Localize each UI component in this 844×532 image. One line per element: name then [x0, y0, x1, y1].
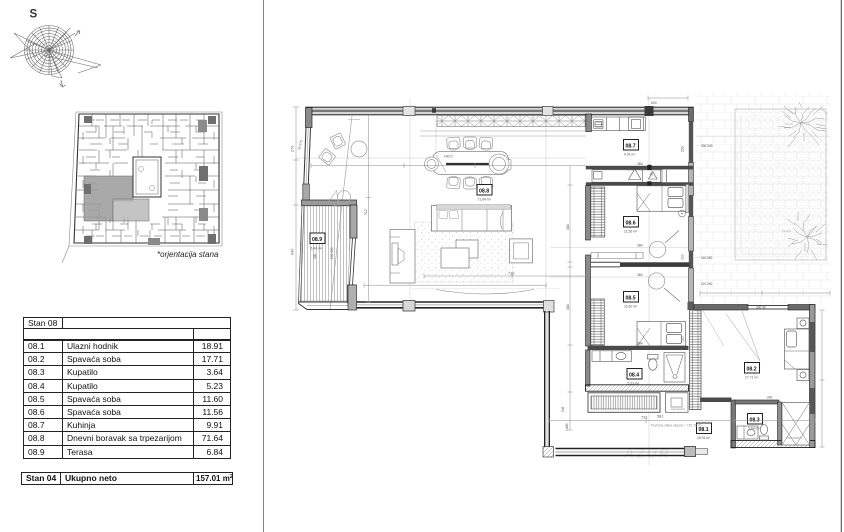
svg-text:600: 600: [651, 101, 657, 105]
svg-text:384: 384: [566, 224, 570, 230]
svg-text:5.23 m²: 5.23 m²: [628, 382, 640, 386]
svg-text:08.6: 08.6: [626, 220, 636, 226]
svg-text:180: 180: [313, 253, 317, 259]
svg-text:Povrsina stana ukupno = 157.78: Povrsina stana ukupno = 157.78 m²: [651, 424, 701, 428]
svg-text:11.60 m²: 11.60 m²: [624, 305, 638, 309]
svg-text:120: 120: [681, 254, 685, 260]
svg-text:240: 240: [767, 396, 773, 400]
svg-text:384: 384: [637, 273, 643, 277]
svg-text:253: 253: [681, 146, 685, 152]
svg-text:384: 384: [637, 244, 643, 248]
svg-text:240 250: 240 250: [330, 247, 334, 259]
svg-text:120: 120: [681, 336, 685, 342]
svg-text:08.5: 08.5: [626, 295, 636, 301]
svg-text:S: S: [30, 9, 38, 21]
svg-text:11.56 m²: 11.56 m²: [624, 230, 638, 234]
svg-text:08.1: 08.1: [699, 427, 709, 433]
svg-text:71.64 m²: 71.64 m²: [478, 198, 492, 202]
svg-text:146: 146: [561, 406, 565, 412]
svg-text:723: 723: [641, 416, 647, 420]
svg-text:08.2: 08.2: [747, 366, 757, 372]
svg-text:eventualno: eventualno: [786, 436, 802, 440]
svg-text:AZUR: AZUR: [623, 445, 671, 461]
svg-text:384: 384: [637, 342, 643, 346]
svg-text:6.84 m²: 6.84 m²: [311, 247, 323, 251]
svg-text:384: 384: [637, 162, 643, 166]
svg-text:1445: 1445: [565, 423, 569, 431]
svg-text:08.9: 08.9: [312, 237, 322, 243]
svg-text:17.71 m²: 17.71 m²: [745, 376, 759, 380]
svg-text:vesmasina: vesmasina: [671, 407, 686, 411]
svg-text:3.64 m²: 3.64 m²: [748, 427, 760, 431]
svg-text:08.7: 08.7: [626, 143, 636, 149]
svg-text:581: 581: [657, 415, 663, 419]
svg-text:08.8: 08.8: [479, 188, 489, 194]
svg-text:270: 270: [291, 146, 295, 152]
svg-text:*orjentacija stana: *orjentacija stana: [157, 250, 219, 259]
svg-text:240 90: 240 90: [756, 306, 766, 310]
svg-text:300 240: 300 240: [701, 144, 713, 148]
svg-text:18.91 m²: 18.91 m²: [697, 436, 711, 440]
svg-text:940: 940: [291, 249, 295, 255]
svg-text:08.4: 08.4: [629, 372, 639, 378]
svg-text:712: 712: [364, 209, 368, 215]
svg-text:384: 384: [566, 304, 570, 310]
svg-text:110 240: 110 240: [701, 282, 713, 286]
svg-text:9.91 m²: 9.91 m²: [624, 153, 636, 157]
svg-text:710: 710: [508, 272, 514, 276]
svg-text:HKO: HKO: [444, 154, 453, 159]
svg-text:35 270: 35 270: [297, 140, 303, 151]
svg-text:110 240: 110 240: [701, 256, 713, 260]
